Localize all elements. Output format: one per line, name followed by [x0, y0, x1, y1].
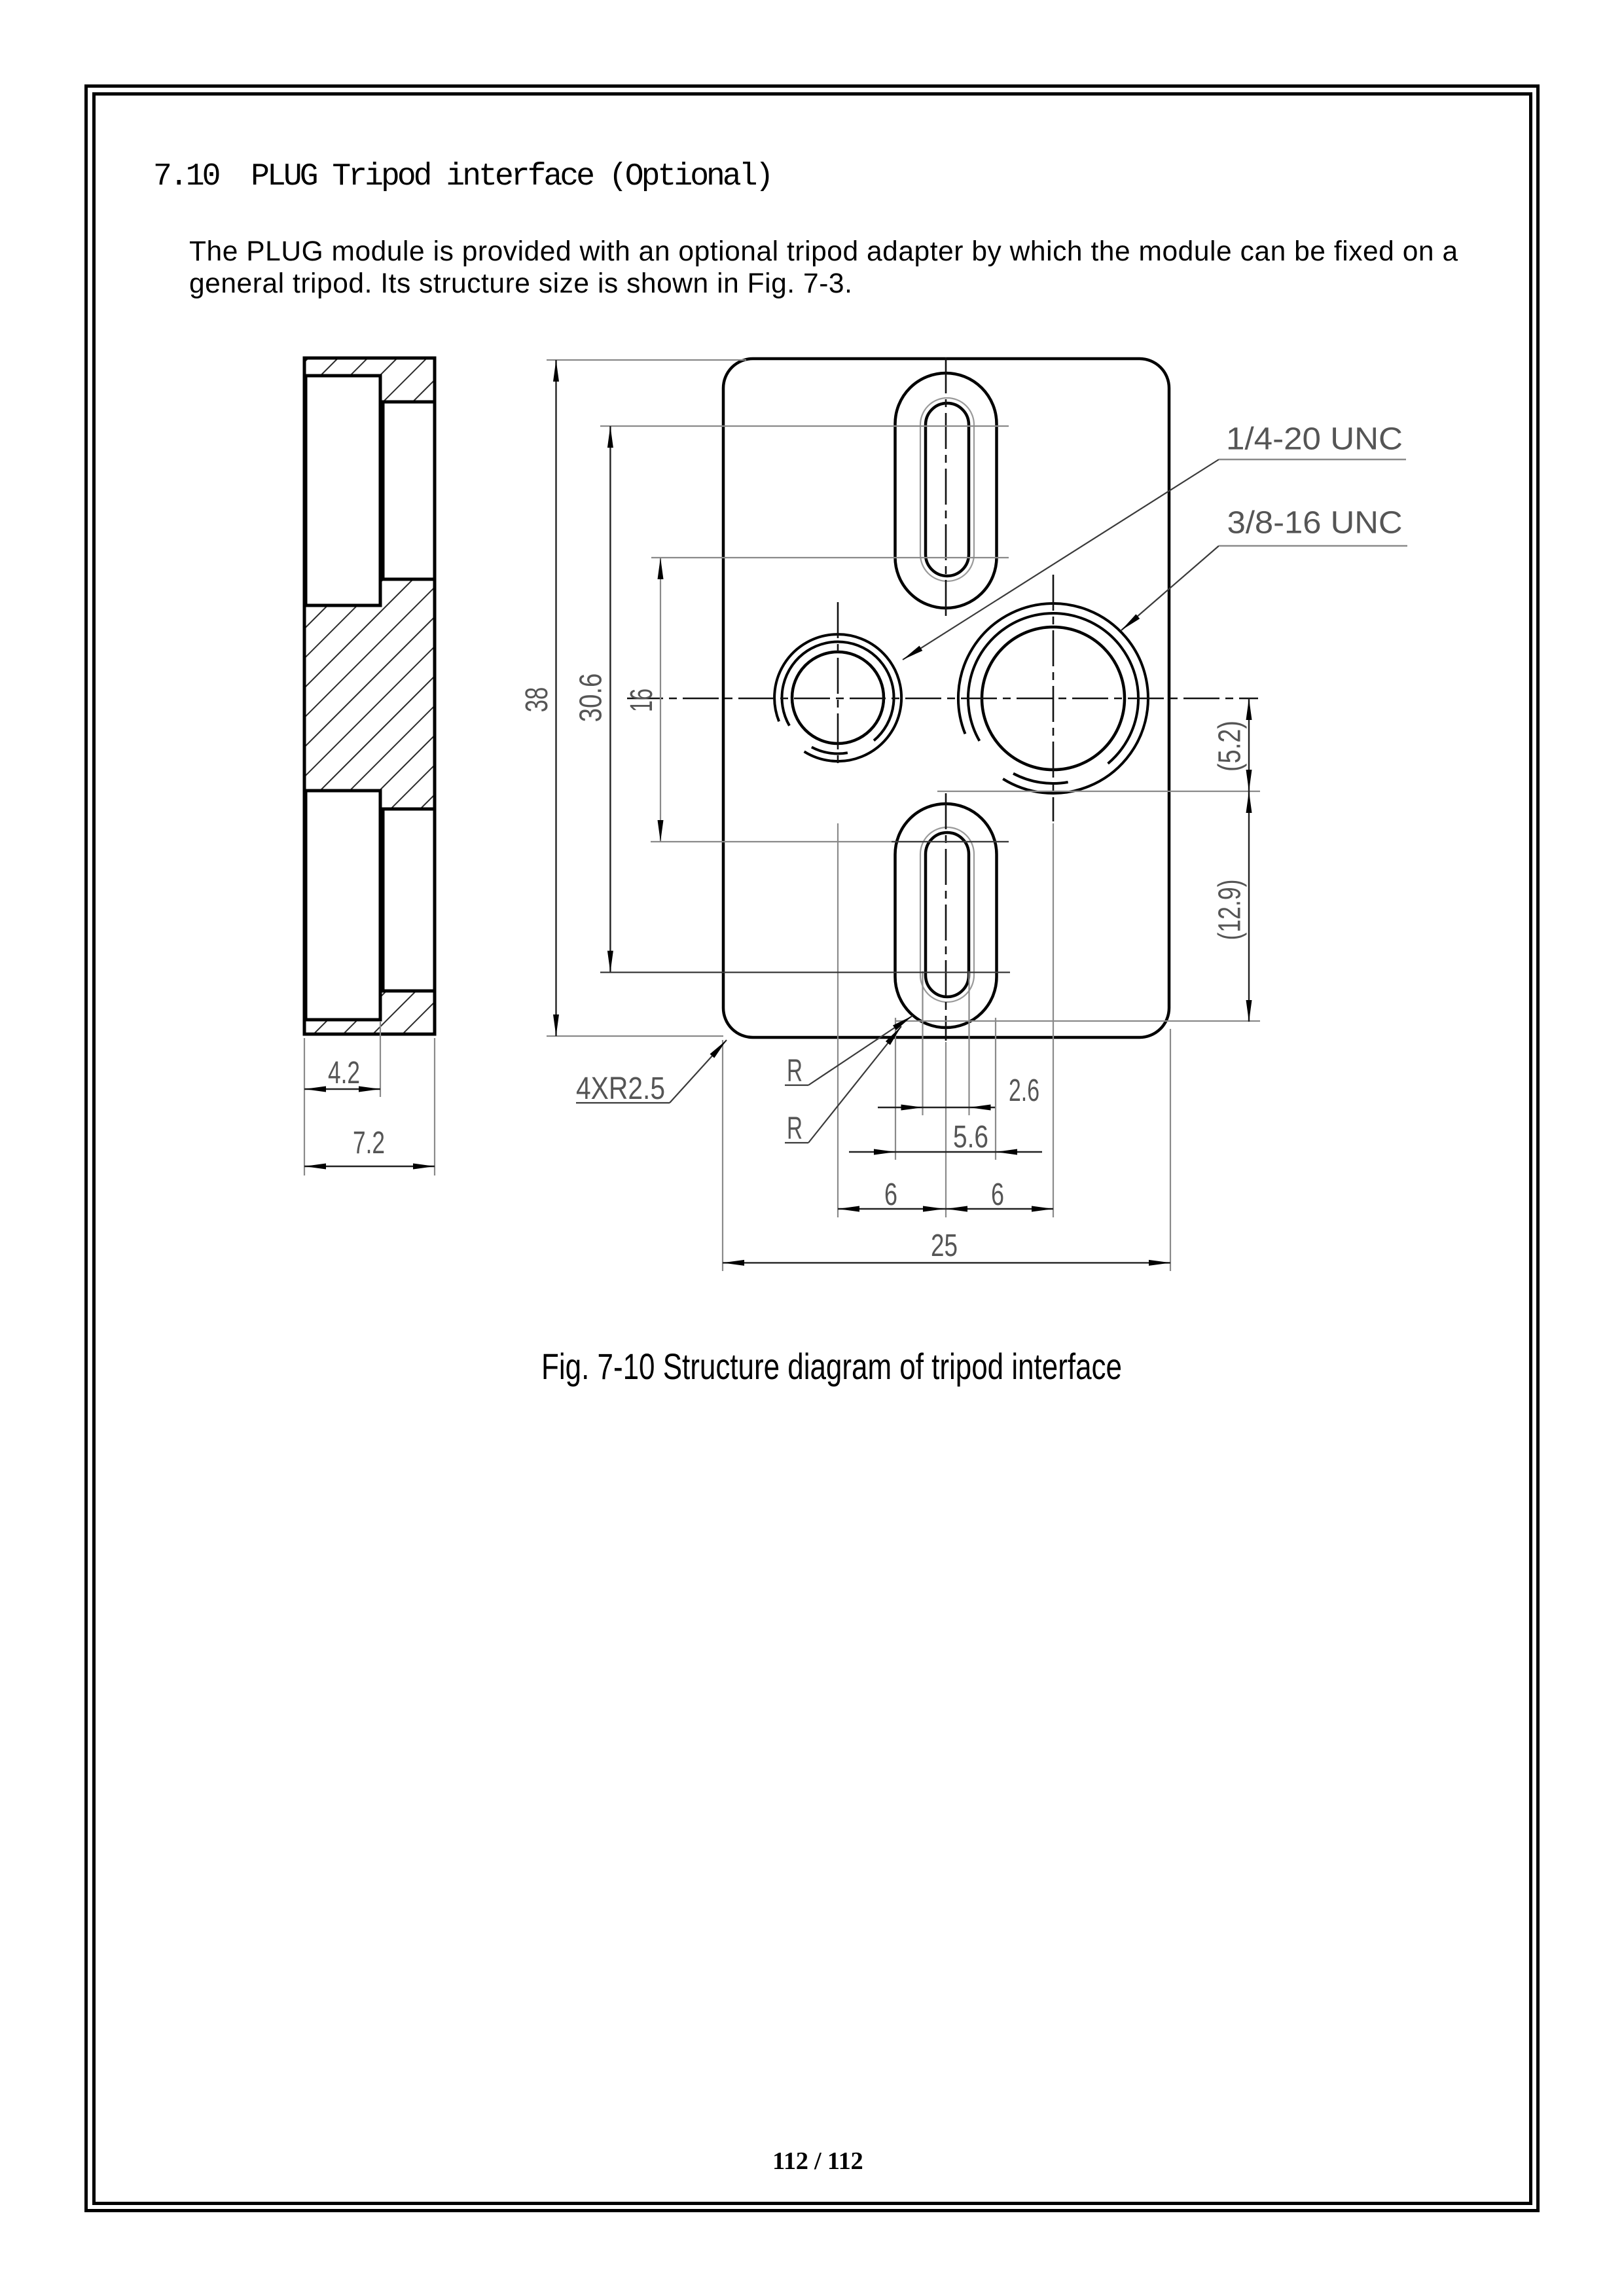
svg-text:(12.9): (12.9) [1213, 880, 1248, 941]
svg-text:1/4-20 UNC: 1/4-20 UNC [1226, 422, 1403, 457]
svg-text:30.6: 30.6 [574, 673, 609, 723]
svg-text:25: 25 [931, 1229, 958, 1263]
svg-text:4XR2.5: 4XR2.5 [576, 1071, 665, 1106]
svg-text:6: 6 [884, 1177, 897, 1212]
svg-text:3/8-16 UNC: 3/8-16 UNC [1227, 506, 1403, 541]
svg-text:R: R [787, 1111, 803, 1146]
svg-text:6: 6 [991, 1177, 1004, 1212]
svg-text:7.2: 7.2 [353, 1126, 385, 1160]
svg-text:2.6: 2.6 [1009, 1073, 1039, 1108]
svg-text:16: 16 [624, 689, 659, 712]
svg-text:(5.2): (5.2) [1213, 721, 1248, 772]
svg-text:R: R [787, 1054, 803, 1088]
svg-text:4.2: 4.2 [328, 1056, 360, 1090]
svg-text:38: 38 [520, 687, 554, 713]
svg-text:5.6: 5.6 [953, 1120, 988, 1155]
